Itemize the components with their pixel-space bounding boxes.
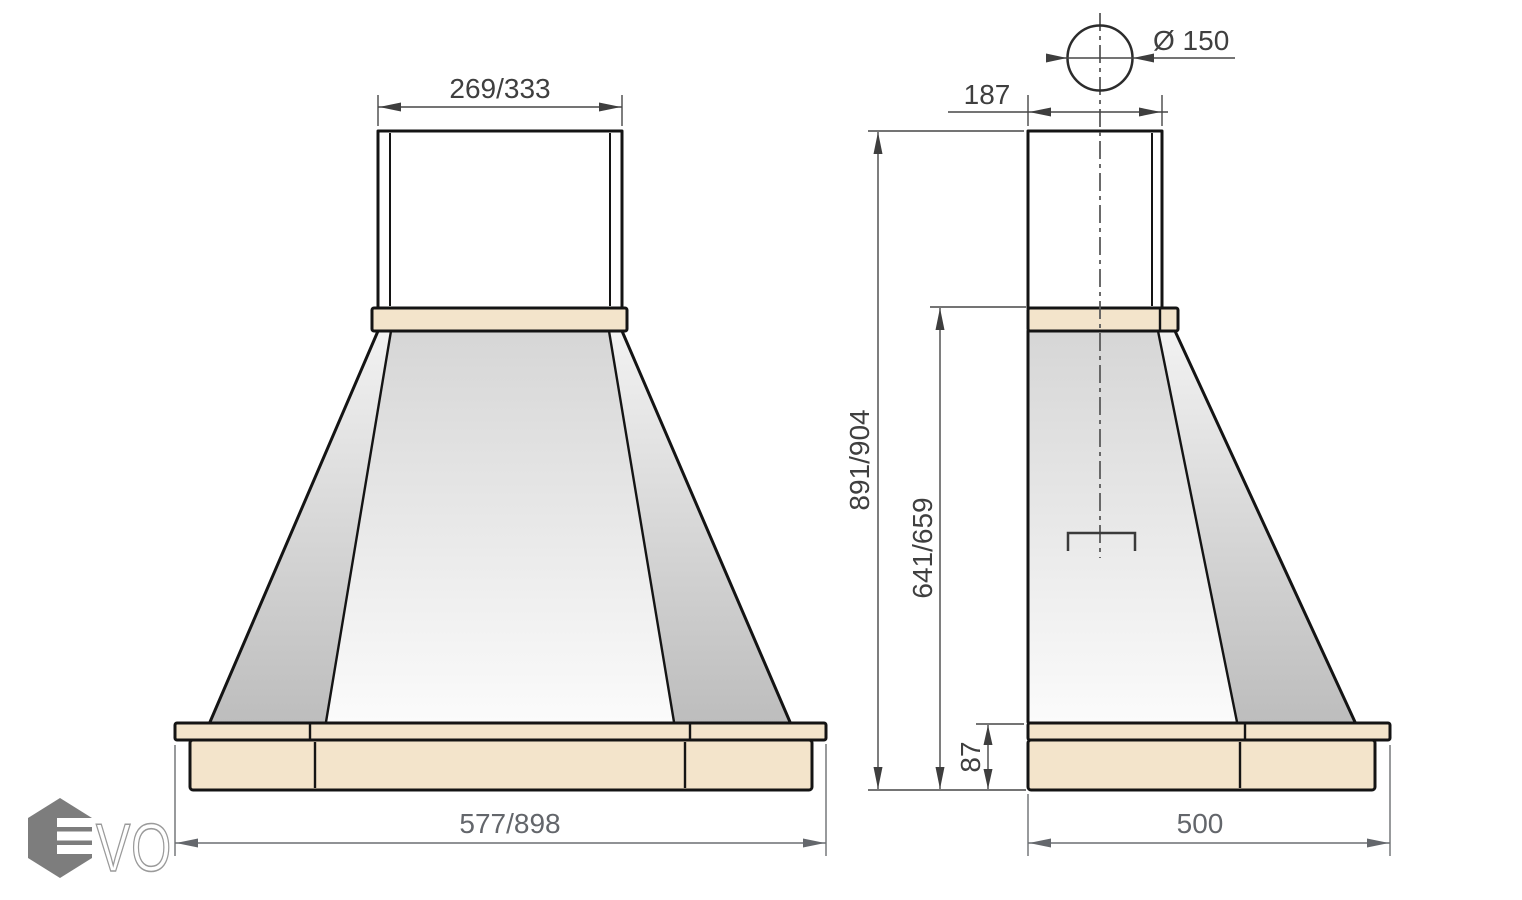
front-base-top-strip xyxy=(175,723,826,740)
logo-e-bar-middle xyxy=(57,832,92,841)
side-chimney-panel xyxy=(1028,131,1162,308)
arrowhead-left xyxy=(379,103,401,112)
arrowhead-up xyxy=(874,132,883,154)
dim-label-top-width: 269/333 xyxy=(449,73,550,104)
dim-label-bottom-depth: 500 xyxy=(1177,808,1224,839)
front-chimney-panel xyxy=(378,131,622,308)
arrowhead-right xyxy=(1139,108,1161,117)
arrowhead-left xyxy=(1046,54,1067,63)
side-base-top-strip xyxy=(1028,723,1390,740)
dim-base-height: 87 xyxy=(955,724,1024,789)
dim-body-height: 641/659 xyxy=(907,307,1026,789)
front-trim-board xyxy=(372,308,627,331)
logo-e-bars xyxy=(57,818,92,854)
dim-duct-diameter: Ø 150 xyxy=(1046,25,1235,91)
dim-label-top-depth: 187 xyxy=(964,79,1011,110)
arrowhead-right xyxy=(1133,54,1154,63)
logo-e-bar-top xyxy=(57,818,92,827)
dimension-drawing-page: 269/333 577/898 xyxy=(0,0,1522,900)
arrowhead-left xyxy=(1029,108,1051,117)
dim-label-duct-diameter: Ø 150 xyxy=(1153,25,1229,56)
dim-label-body-height: 641/659 xyxy=(907,497,938,598)
dim-label-bottom-width: 577/898 xyxy=(459,808,560,839)
arrowhead-left xyxy=(1029,839,1051,848)
side-view: Ø 150 187 891/904 641/659 xyxy=(844,13,1390,856)
front-base-band xyxy=(190,740,812,790)
dim-label-base-height: 87 xyxy=(955,741,986,772)
hood-dimension-drawing: 269/333 577/898 xyxy=(0,0,1522,900)
logo-e-bar-bottom xyxy=(57,845,92,854)
dim-label-total-height: 891/904 xyxy=(844,409,875,510)
arrowhead-right xyxy=(1367,839,1389,848)
evo-logo: VO xyxy=(28,798,172,886)
dim-total-height: 891/904 xyxy=(844,131,1026,790)
arrowhead-right xyxy=(599,103,621,112)
arrowhead-down xyxy=(874,767,883,789)
side-base-band xyxy=(1028,740,1375,790)
arrowhead-right xyxy=(803,839,825,848)
side-trim-board xyxy=(1028,308,1178,331)
dim-side-top-depth: 187 xyxy=(948,79,1168,126)
logo-vo-text: VO xyxy=(96,810,172,886)
arrowhead-left xyxy=(176,839,198,848)
dim-front-top-width: 269/333 xyxy=(378,73,622,126)
arrowhead-up xyxy=(936,308,945,330)
arrowhead-down xyxy=(936,767,945,789)
front-view: 269/333 577/898 xyxy=(175,73,826,856)
